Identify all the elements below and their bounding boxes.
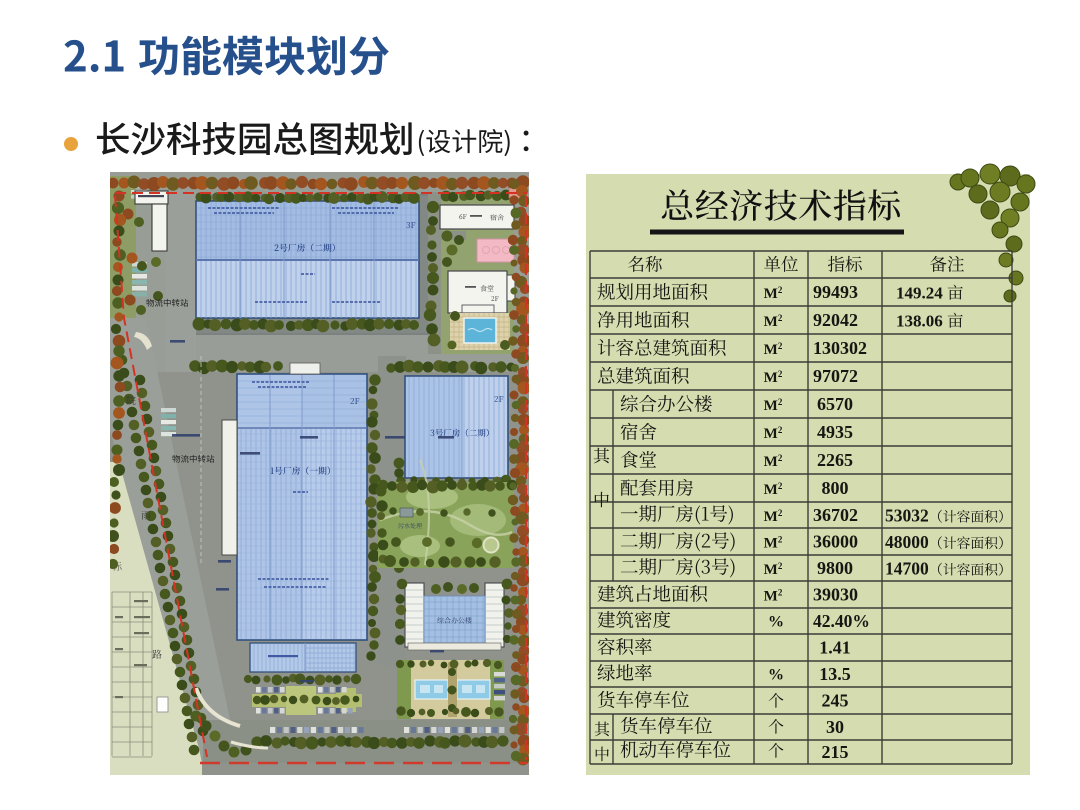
svg-text:39030: 39030 bbox=[813, 584, 858, 604]
svg-text:138.06: 138.06 bbox=[896, 312, 943, 331]
svg-text:9800: 9800 bbox=[817, 558, 853, 578]
svg-text:14700: 14700 bbox=[885, 559, 929, 579]
svg-text:53032: 53032 bbox=[885, 506, 929, 526]
svg-text:4935: 4935 bbox=[817, 422, 853, 442]
svg-text:6570: 6570 bbox=[817, 394, 853, 414]
svg-text:2265: 2265 bbox=[817, 450, 853, 470]
svg-text:245: 245 bbox=[822, 690, 849, 710]
svg-text:36000: 36000 bbox=[813, 531, 858, 551]
svg-text:42.40%: 42.40% bbox=[813, 611, 870, 631]
svg-text:215: 215 bbox=[822, 742, 849, 762]
svg-text:%: % bbox=[768, 666, 784, 683]
svg-text:800: 800 bbox=[822, 478, 849, 498]
svg-text:130302: 130302 bbox=[813, 338, 867, 358]
svg-text:1.41: 1.41 bbox=[819, 637, 851, 657]
svg-text:48000: 48000 bbox=[885, 532, 929, 552]
svg-text:13.5: 13.5 bbox=[819, 664, 851, 684]
svg-text:36702: 36702 bbox=[813, 505, 858, 525]
svg-text:97072: 97072 bbox=[813, 366, 858, 386]
svg-text:92042: 92042 bbox=[813, 310, 858, 330]
svg-text:%: % bbox=[768, 613, 784, 630]
svg-text:30: 30 bbox=[826, 717, 844, 737]
svg-text:99493: 99493 bbox=[813, 282, 858, 302]
svg-text:149.24: 149.24 bbox=[896, 284, 943, 303]
